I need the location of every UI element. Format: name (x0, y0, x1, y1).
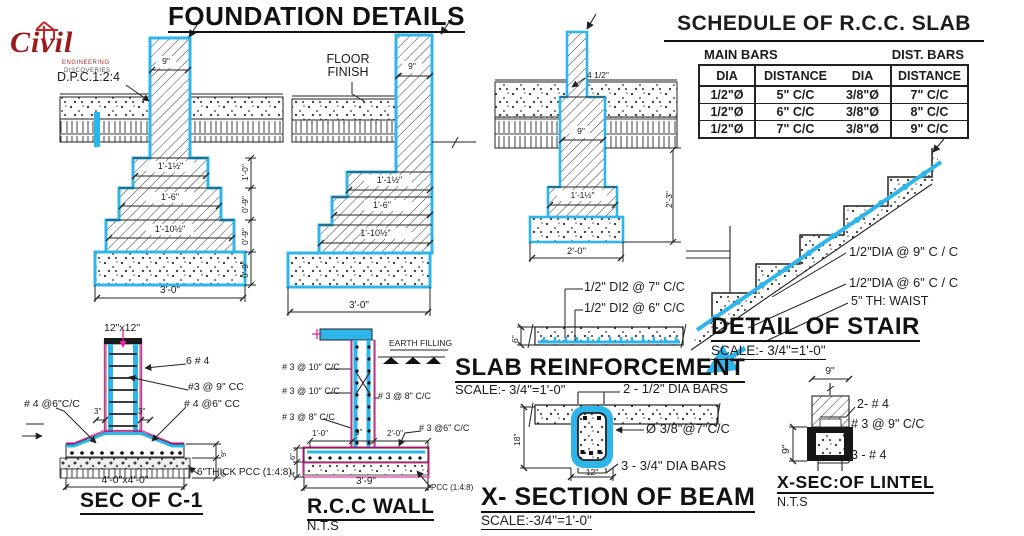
c1-pcc (60, 458, 190, 469)
c1-title: SEC OF C-1 (80, 490, 203, 515)
rcc-wall-drawing (293, 329, 448, 491)
col-distance-main: DISTANCE (755, 65, 835, 86)
lintel-height-dim: 9" (781, 444, 792, 454)
f1-soling (60, 119, 150, 142)
col-dia-dist: DIA (835, 65, 891, 86)
f2-base-dim: 3'-0" (288, 301, 430, 312)
f2-wall-width: 9" (402, 62, 422, 71)
f1-step1-dim: 1'-1½" (133, 162, 208, 171)
f1-step2-dim: 1'-6" (119, 193, 221, 202)
f3-footing (530, 217, 623, 242)
wall-footing (304, 448, 428, 462)
f3-depth-dim: 2'-3" (665, 191, 674, 208)
drawing-sheet: Civil ENGINEERING DISCOVERIES FOUNDATION… (0, 0, 1024, 536)
lintel-top-bars-label: 2- # 4 (857, 398, 889, 411)
c1-footing-size-dim: 4'-0"x4'-0" (66, 475, 184, 486)
slab-scale: SCALE:- 3/4"=1'-0" (455, 383, 565, 397)
f1-vdim-2: 0'-9" (241, 196, 250, 213)
f2-footing (288, 253, 430, 287)
beam-top-bars-label: 2 - 1/2" DIA BARS (623, 382, 728, 396)
lintel-stirrups-label: # 3 @ 9" C/C (851, 418, 924, 431)
f1-wall-width: 9" (156, 57, 176, 66)
lintel-scale: N.T.S (777, 496, 808, 509)
f3-floor-slab (495, 82, 567, 117)
wall-pcc-note: PCC (1:4:8) (431, 484, 473, 492)
f1-vdim-3: 0'-9" (241, 228, 250, 245)
f1-vdim-4: 0'-9" (241, 261, 250, 278)
wall-base-width-dim: 3'-9" (304, 477, 428, 488)
stair-title: DETAIL OF STAIR (711, 314, 920, 342)
floor-finish-label-2: FINISH (320, 66, 376, 79)
f2-step1-dim: 1'-1½" (347, 176, 432, 185)
foundation-3-drawing (495, 14, 681, 262)
f3-step1-dim: 1'-1½" (548, 191, 617, 200)
f2-step2-dim: 1'-6" (332, 201, 432, 210)
slab-reinforcement-drawing (517, 289, 686, 348)
beam-width-dim: 12" (580, 468, 604, 477)
f3-wall-width: 9" (572, 127, 590, 136)
f1-vdim-1: 1'-0" (241, 164, 250, 181)
f1-footing (95, 252, 245, 285)
stair-waist-label: 5" TH: WAIST (851, 295, 928, 308)
schedule-title: SCHEDULE OF R.C.C. SLAB (664, 12, 984, 42)
slab-bottom-bars-label: 1/2" DI2 @ 6" C/C (584, 302, 685, 315)
beam-bottom-bars-label: 3 - 3/4" DIA BARS (621, 459, 726, 473)
beam-depth-dim: 18" (513, 434, 522, 446)
slab-thickness-dim: 6" (511, 335, 520, 343)
col-dia-main: DIA (699, 65, 755, 86)
logo-subtitle-1: ENGINEERING (62, 60, 110, 66)
col-distance-dist: DISTANCE (891, 65, 968, 86)
beam-scale: SCALE:-3/4"=1'-0" (481, 514, 592, 530)
schedule-row-3: 1/2"Ø7" C/C 3/8"Ø9" C/C (699, 121, 968, 139)
schedule-group-dist-bars: DIST. BARS (892, 47, 964, 62)
schedule-group-main-bars: MAIN BARS (704, 47, 778, 62)
dpc-label: D.P.C.1:2:4 (57, 71, 120, 84)
c1-pcc-note: 6"THICK PCC (1:4:8) (197, 468, 292, 479)
foundation-2-drawing (288, 18, 476, 316)
wall-pcc-depth-dim: 4" (289, 469, 297, 476)
f2-floor-slab (292, 99, 396, 120)
f3-base-dim: 2'-0" (530, 247, 623, 257)
c1-footing-depth-dim: 9" (220, 450, 228, 457)
wall-toe-left-dim: 1'-0" (312, 430, 328, 438)
beam-title: X- SECTION OF BEAM (481, 484, 755, 513)
wall-width-dim: 9" (355, 429, 362, 437)
wall-left-label-2: # 3 @ 10" C/C (282, 387, 340, 396)
f1-step3-dim: 1'-10½" (106, 225, 234, 234)
f1-floor-slab (60, 97, 150, 119)
c1-offset-left-dim: 3" (94, 408, 101, 416)
wall-toe-right-dim: 2'-0" (387, 430, 403, 438)
f3-wall-top-width: 4 1/2" (587, 71, 609, 80)
wall-top-slab (320, 329, 372, 340)
schedule-of-rcc-slab: SCHEDULE OF R.C.C. SLAB MAIN BARS DIST. … (664, 12, 984, 139)
c1-right-bars-label: # 4 @6" CC (184, 399, 240, 410)
schedule-row-2: 1/2"Ø6" C/C 3/8"Ø8" C/C (699, 104, 968, 121)
c1-ties-label: #3 @ 9" CC (188, 382, 244, 393)
wall-pcc (304, 462, 428, 475)
wall-right-label-2: # 3 @6" C/C (419, 424, 469, 433)
beam-stirrups-label: Ø 3/8"@7"C/C (646, 422, 730, 436)
dpc-marker (94, 112, 100, 147)
lintel-section-drawing (789, 379, 855, 471)
lintel-bottom-bars-label: 3 - # 4 (851, 449, 886, 462)
f1-base-dim: 3'-0" (95, 286, 245, 297)
schedule-header-row: DIA DISTANCE DIA DISTANCE (699, 65, 968, 86)
slab-top-bars-label: 1/2" DI2 @ 7" C/C (584, 281, 685, 294)
f2-step3-dim: 1'-10½" (319, 229, 432, 238)
slab-title: SLAB REINFORCEMENT (455, 355, 745, 383)
logo-brand: Civil (10, 26, 73, 60)
page-title: FOUNDATION DETAILS (168, 3, 465, 33)
schedule-table: DIA DISTANCE DIA DISTANCE 1/2"Ø5" C/C 3/… (698, 64, 969, 139)
wall-left-label-3: # 3 @ 8" C/C (282, 413, 335, 422)
wall-earth-filling-label: EARTH FILLING (389, 339, 452, 348)
wall-slab-depth-dim: 6" (289, 453, 297, 460)
wall-right-label-1: # 3 @ 8" C/C (378, 392, 431, 401)
stair-main-bars-label: 1/2"DIA @ 9" C / C (849, 245, 958, 259)
c1-column-size: 12"x12" (104, 323, 140, 334)
lintel-title: X-SEC:OF LINTEL (777, 473, 934, 494)
c1-offset-right-dim: 3" (138, 408, 145, 416)
stair-dist-bars-label: 1/2"DIA @ 6" C / C (849, 276, 958, 290)
schedule-row-1: 1/2"Ø5" C/C 3/8"Ø7" C/C (699, 86, 968, 104)
wall-scale: N.T.S (307, 519, 339, 533)
c1-vertical-bars-label: 6 # 4 (186, 356, 209, 367)
lintel-top-width-dim: 9" (818, 366, 842, 377)
c1-left-bars-label: # 4 @6"C/C (24, 399, 80, 410)
wall-left-label-1: # 3 @ 10" C/C (282, 363, 340, 372)
